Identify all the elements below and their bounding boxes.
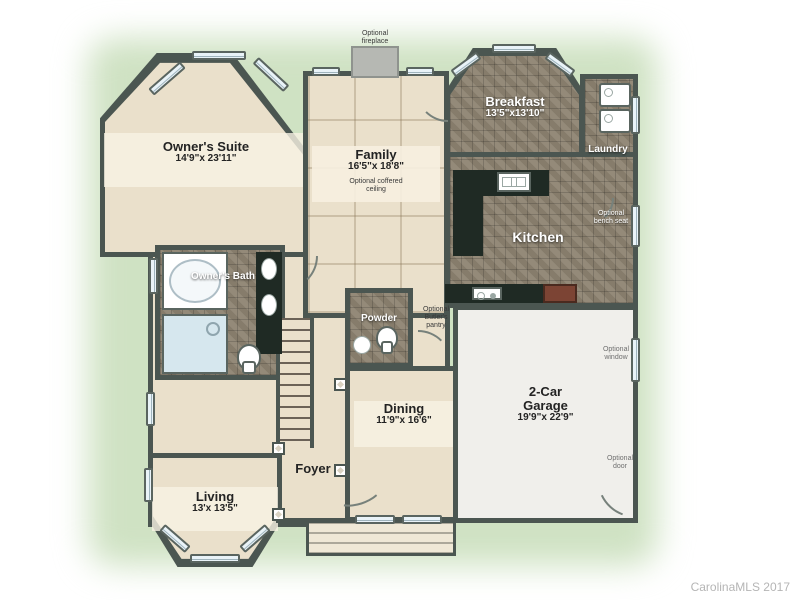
room-dims: 14'9"x 23'11" — [150, 154, 262, 165]
window-icon — [192, 51, 246, 60]
room-name: Breakfast — [455, 95, 575, 109]
owners-suite-label: Owner's Suite 14'9"x 23'11" — [150, 140, 262, 165]
room-name: Laundry — [578, 145, 638, 156]
optional-fireplace-note: Optional fireplace — [350, 30, 400, 46]
room-name: Dining — [352, 402, 456, 416]
window-icon — [492, 44, 536, 53]
column-post — [272, 508, 285, 521]
window-icon — [312, 67, 340, 76]
living-label: Living 13'x 13'5" — [160, 490, 270, 515]
column-post — [334, 378, 347, 391]
room-name: Living — [160, 490, 270, 504]
room-name: Kitchen — [488, 230, 588, 245]
garage-label: 2-Car Garage 19'9"x 22'9" — [508, 385, 583, 424]
window-icon — [355, 515, 395, 524]
front-steps — [306, 522, 456, 556]
dining-label: Dining 11'9"x 16'6" — [352, 402, 456, 427]
window-icon — [146, 392, 155, 426]
kitchen-counter-wood — [543, 284, 577, 303]
toilet-icon — [376, 326, 398, 350]
washer-dryer-icon — [599, 109, 631, 133]
room-name: Owner's Suite — [150, 140, 262, 154]
shower-icon — [162, 314, 228, 374]
fireplace-icon — [351, 46, 399, 78]
sink-icon — [353, 336, 371, 354]
breakfast-label: Breakfast 13'5"x13'10" — [455, 95, 575, 120]
column-post — [272, 442, 285, 455]
window-icon — [631, 96, 640, 134]
room-dims: 13'5"x13'10" — [455, 109, 575, 120]
window-icon — [406, 67, 434, 76]
column-post — [334, 464, 347, 477]
kitchen-label: Kitchen — [488, 230, 588, 245]
powder-label: Powder — [345, 314, 413, 325]
room-dims: 19'9"x 22'9" — [508, 413, 583, 424]
sink-icon — [497, 172, 531, 192]
sink-icon — [261, 294, 277, 316]
window-icon — [190, 554, 240, 563]
room-name: Owner's Bath — [168, 272, 278, 283]
optional-window-note: Optional window — [596, 346, 636, 362]
washer-dryer-icon — [599, 83, 631, 107]
floor-plan-canvas: Owner's Suite 14'9"x 23'11" Family 16'5"… — [0, 0, 800, 600]
toilet-icon — [237, 344, 261, 370]
window-icon — [631, 205, 640, 247]
window-icon — [402, 515, 442, 524]
room-name: 2-Car Garage — [508, 385, 583, 413]
room-dims: 13'x 13'5" — [160, 504, 270, 515]
optional-bench-seat-note: Optional bench seat — [590, 210, 632, 226]
optional-butlers-pantry-note: Optional Butler's pantry — [414, 306, 458, 329]
laundry-label: Laundry — [578, 145, 638, 156]
room-dims: 16'5"x 18'8" — [318, 162, 434, 173]
window-icon — [144, 468, 153, 502]
owners-bath-label: Owner's Bath — [168, 272, 278, 283]
window-icon — [149, 258, 158, 294]
room-name: Powder — [345, 314, 413, 325]
coffered-ceiling-note: Optional coffered ceiling — [340, 178, 412, 194]
range-icon — [472, 287, 502, 300]
kitchen-island — [453, 170, 483, 256]
room-dims: 11'9"x 16'6" — [352, 416, 456, 427]
family-label: Family 16'5"x 18'8" — [318, 148, 434, 173]
watermark: CarolinaMLS 2017 — [691, 580, 790, 594]
optional-door-note: Optional door — [600, 455, 640, 471]
room-name: Family — [318, 148, 434, 162]
